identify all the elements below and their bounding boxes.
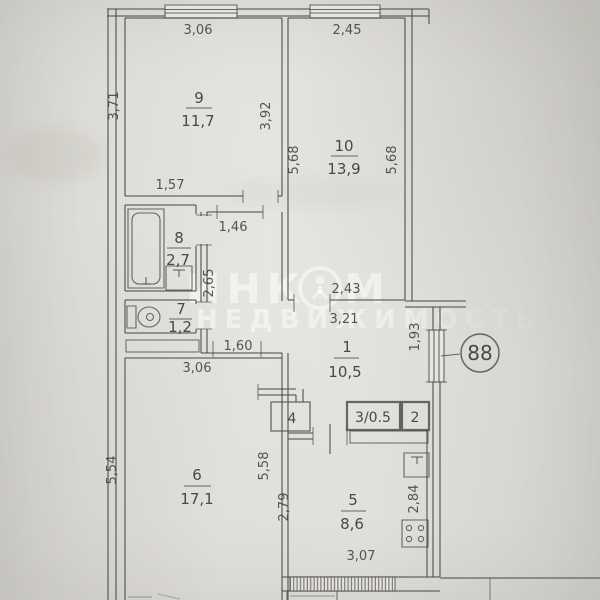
bathtub-icon bbox=[128, 209, 164, 288]
room-9-number: 9 bbox=[194, 89, 204, 107]
stove-icon bbox=[402, 520, 428, 547]
dim-r10-right: 5,68 bbox=[385, 146, 400, 175]
dim-r6-top: 3,06 bbox=[183, 361, 212, 376]
floor-plan-photo: ИНК М НЕДВИЖИМОСТЬ bbox=[0, 0, 600, 600]
dim-r10-left: 5,68 bbox=[287, 146, 302, 175]
dim-kitchen-left: 2,79 bbox=[277, 493, 292, 522]
floor-plan-drawing: ИНК М НЕДВИЖИМОСТЬ bbox=[0, 0, 600, 600]
dim-corridor-left: 2,65 bbox=[202, 269, 217, 298]
dim-kitchen-bottom: 3,07 bbox=[347, 549, 376, 564]
toilet-icon bbox=[127, 306, 160, 328]
dim-r10-bottom: 2,43 bbox=[332, 282, 361, 297]
dim-r9-bottom: 1,57 bbox=[156, 178, 185, 193]
closet-3-number: 3/0.5 bbox=[355, 410, 391, 426]
closet-4-number: 4 bbox=[288, 411, 297, 427]
room-6-number: 6 bbox=[192, 466, 202, 484]
room-7-number: 7 bbox=[176, 300, 186, 318]
cut-off-marks bbox=[128, 594, 180, 599]
room-8-area: 2,7 bbox=[166, 251, 190, 269]
window-top-right bbox=[310, 5, 380, 18]
closet-2-number: 2 bbox=[411, 410, 420, 426]
dim-hall-passage: 1,60 bbox=[224, 339, 253, 354]
room-8-number: 8 bbox=[174, 229, 184, 247]
room-9-area: 11,7 bbox=[181, 112, 214, 130]
dim-window-right: 1,93 bbox=[408, 323, 423, 352]
dim-r9-right: 3,92 bbox=[259, 102, 274, 131]
dim-r6-right: 5,58 bbox=[257, 452, 272, 481]
dim-corridor-top: 1,46 bbox=[219, 220, 248, 235]
room-10-number: 10 bbox=[334, 137, 353, 155]
room-1-area: 10,5 bbox=[328, 363, 361, 381]
built-in-closet-hatch-right bbox=[350, 431, 428, 443]
dim-r9-top: 3,06 bbox=[184, 23, 213, 38]
kitchen-sink-icon bbox=[404, 453, 429, 477]
room-5-area: 8,6 bbox=[340, 515, 364, 533]
apartment-number-badge: 88 bbox=[441, 334, 499, 372]
dim-hall-top: 3,21 bbox=[330, 312, 359, 327]
built-in-closet-hatch-left bbox=[126, 340, 199, 352]
window-bottom bbox=[287, 577, 395, 600]
dim-r10-top: 2,45 bbox=[333, 23, 362, 38]
room-10-area: 13,9 bbox=[327, 160, 360, 178]
room-1-number: 1 bbox=[342, 338, 352, 356]
watermark-subtitle: НЕДВИЖИМОСТЬ bbox=[196, 305, 542, 335]
dim-r6-left: 5,54 bbox=[105, 456, 120, 485]
dim-kitchen-right: 2,84 bbox=[407, 485, 422, 514]
window-top-left bbox=[165, 5, 237, 18]
apartment-number: 88 bbox=[467, 341, 492, 365]
room-7-area: 1,2 bbox=[168, 318, 192, 336]
dim-r9-left: 3,71 bbox=[107, 92, 122, 121]
room-6-area: 17,1 bbox=[180, 490, 213, 508]
room-5-number: 5 bbox=[348, 491, 358, 509]
